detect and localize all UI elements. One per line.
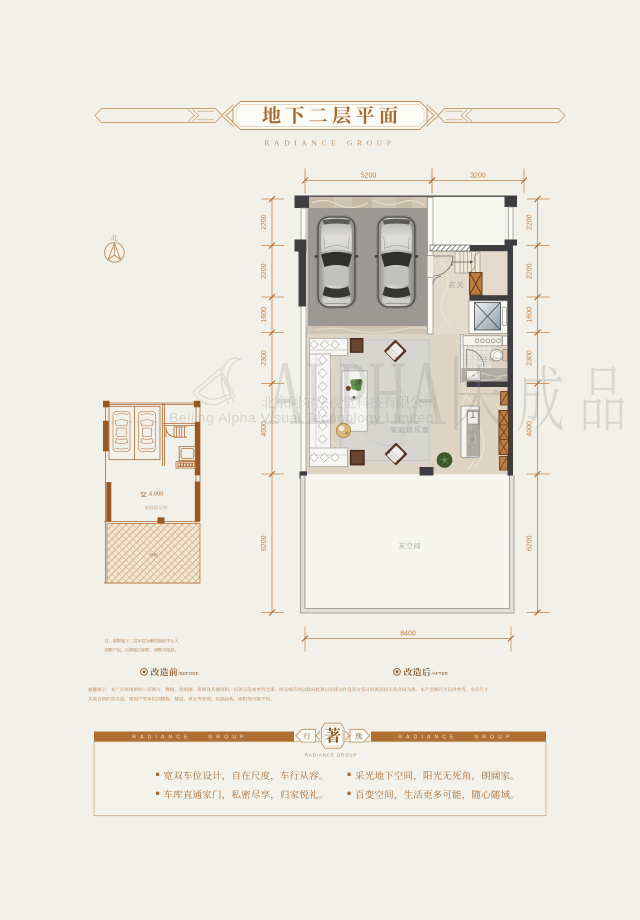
svg-text:1600: 1600 — [527, 307, 534, 323]
svg-text:8400: 8400 — [400, 630, 416, 637]
svg-text:RADIANCE: RADIANCE — [398, 735, 457, 741]
svg-text:/BEFORE: /BEFORE — [179, 671, 199, 676]
svg-text:ALPHA: ALPHA — [266, 342, 446, 444]
svg-text:/AFTER: /AFTER — [432, 671, 449, 676]
svg-text:2200: 2200 — [261, 263, 268, 279]
svg-text:RADIANCE GROUP: RADIANCE GROUP — [305, 752, 358, 757]
svg-text:6200: 6200 — [261, 535, 268, 551]
svg-text:5200: 5200 — [361, 172, 377, 179]
svg-text:Beijing Alpha Visual Techno: Beijing Alpha Visual Technology Limited — [169, 411, 434, 427]
svg-text:2300: 2300 — [527, 350, 534, 366]
svg-text:-6.000: -6.000 — [148, 491, 164, 497]
svg-text:6200: 6200 — [527, 535, 534, 551]
svg-text:4000: 4000 — [527, 421, 534, 437]
svg-text:2200: 2200 — [527, 263, 534, 279]
svg-text:1600: 1600 — [261, 307, 268, 323]
svg-text:GROUP: GROUP — [208, 735, 247, 741]
svg-text:2200: 2200 — [527, 214, 534, 230]
svg-text:GROUP: GROUP — [474, 735, 513, 741]
svg-text:3200: 3200 — [470, 172, 486, 179]
svg-text:RADIANCE: RADIANCE — [132, 735, 191, 741]
svg-text:2200: 2200 — [261, 214, 268, 230]
svg-text:RADIANCE GROUP: RADIANCE GROUP — [264, 139, 395, 148]
